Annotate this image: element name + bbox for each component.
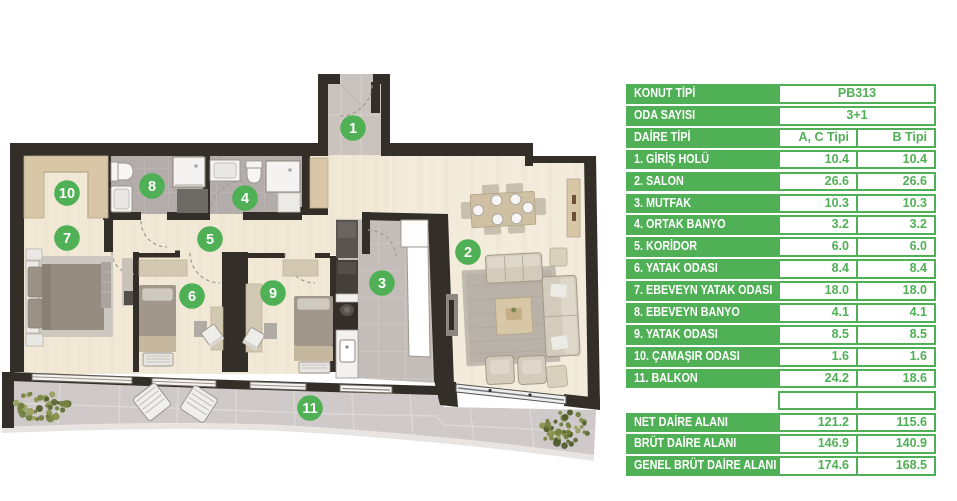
svg-text:6: 6: [188, 289, 196, 305]
svg-text:1: 1: [349, 121, 357, 137]
svg-text:7: 7: [63, 231, 71, 247]
svg-text:2: 2: [464, 245, 472, 261]
svg-text:11: 11: [302, 401, 317, 417]
svg-text:10: 10: [59, 186, 75, 202]
svg-text:8: 8: [148, 179, 156, 195]
svg-text:9: 9: [269, 286, 277, 302]
svg-text:5: 5: [206, 232, 214, 248]
svg-text:3: 3: [378, 276, 386, 292]
svg-text:4: 4: [241, 191, 249, 207]
